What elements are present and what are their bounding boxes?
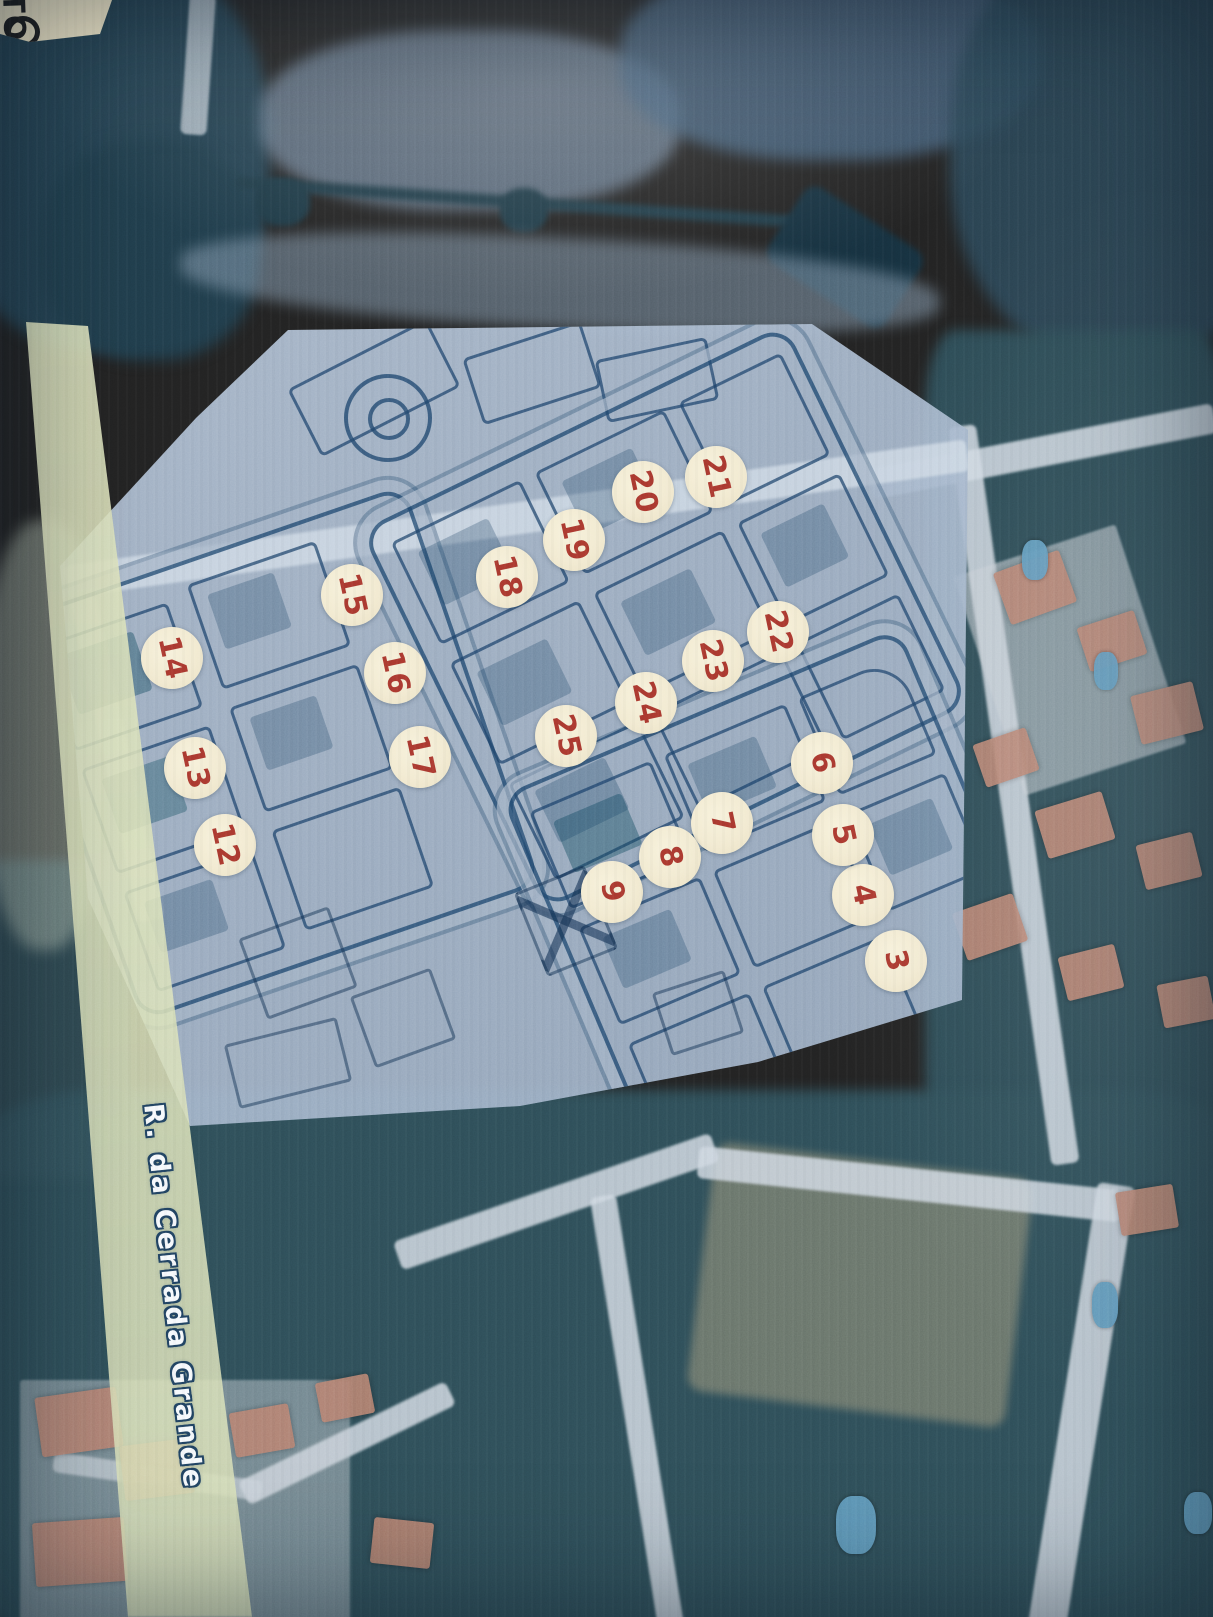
lot-marker-number: 24	[627, 678, 665, 727]
lot-marker-number: 22	[759, 607, 797, 656]
lot-marker-6: 6	[791, 732, 853, 794]
lot-marker-number: 8	[653, 843, 687, 871]
lot-marker-12: 12	[194, 814, 256, 876]
lot-marker-17: 17	[389, 726, 451, 788]
lot-marker-25: 25	[535, 705, 597, 767]
lot-marker-4: 4	[832, 864, 894, 926]
lot-marker-22: 22	[747, 601, 809, 663]
lot-marker-number: 18	[488, 552, 526, 601]
lot-marker-number: 17	[401, 732, 439, 781]
lot-marker-21: 21	[685, 446, 747, 508]
lot-marker-number: 20	[624, 467, 662, 516]
lot-marker-9: 9	[581, 861, 643, 923]
lot-marker-19: 19	[543, 509, 605, 571]
markers-layer: 34567891213141516171819202122232425	[0, 0, 1213, 1617]
aerial-photo: R. da Cerrada Grande 3456789121314151617…	[0, 0, 1213, 1617]
lot-marker-number: 13	[176, 743, 214, 792]
lot-marker-number: 3	[879, 947, 913, 975]
lot-marker-13: 13	[164, 737, 226, 799]
lot-marker-number: 21	[697, 452, 735, 501]
lot-marker-14: 14	[141, 627, 203, 689]
lot-marker-number: 23	[694, 636, 732, 685]
lot-marker-number: 7	[705, 809, 739, 837]
lot-marker-number: 14	[153, 633, 191, 682]
lot-marker-number: 25	[547, 711, 585, 760]
lot-marker-number: 5	[826, 821, 860, 849]
lot-marker-20: 20	[612, 461, 674, 523]
lot-marker-number: 16	[376, 648, 414, 697]
lot-marker-16: 16	[364, 642, 426, 704]
lot-marker-number: 4	[846, 881, 880, 909]
lot-marker-18: 18	[476, 546, 538, 608]
lot-marker-number: 9	[595, 878, 629, 906]
lot-marker-number: 6	[805, 749, 839, 777]
lot-marker-number: 19	[555, 515, 593, 564]
lot-marker-15: 15	[321, 564, 383, 626]
lot-marker-number: 15	[333, 570, 371, 619]
lot-marker-8: 8	[639, 826, 701, 888]
lot-marker-3: 3	[865, 930, 927, 992]
lot-marker-5: 5	[812, 804, 874, 866]
lot-marker-23: 23	[682, 630, 744, 692]
lot-marker-number: 12	[206, 820, 244, 869]
lot-marker-7: 7	[691, 792, 753, 854]
lot-marker-24: 24	[615, 672, 677, 734]
